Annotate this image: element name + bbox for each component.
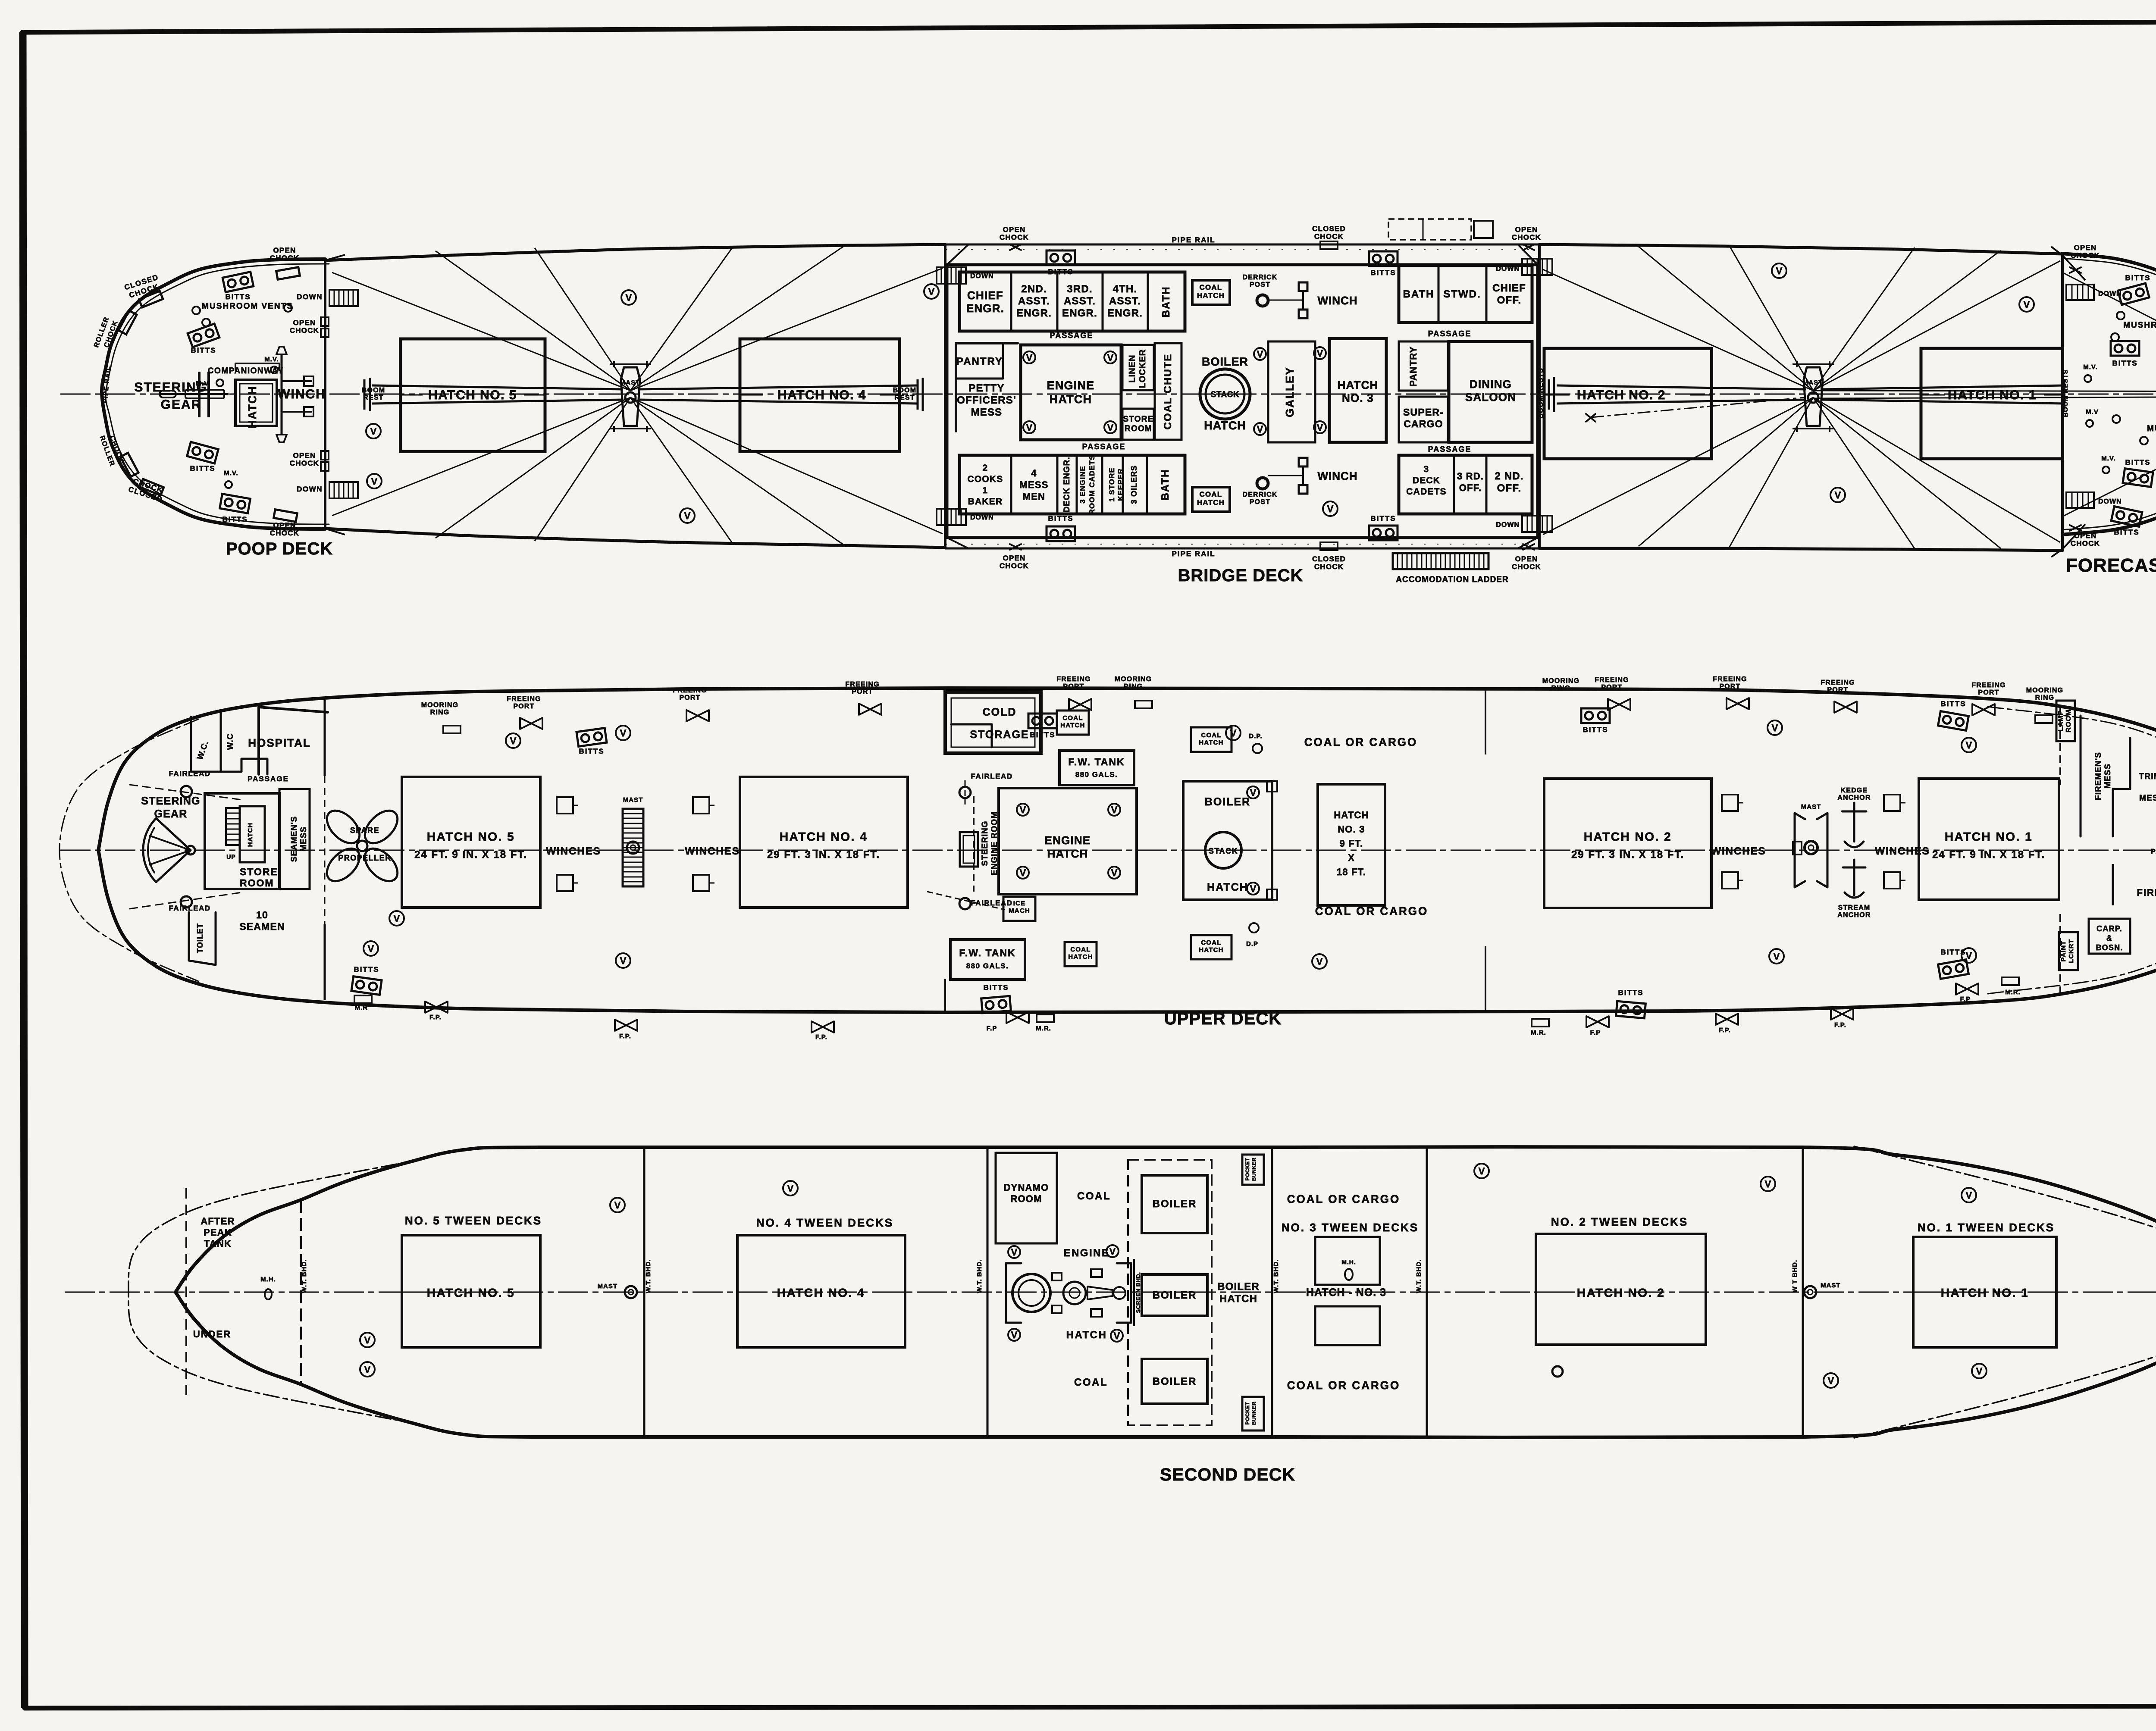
svg-text:V: V	[684, 510, 691, 521]
svg-text:MAST: MAST	[1801, 803, 1821, 811]
svg-text:W.T. BHD.: W.T. BHD.	[976, 1259, 983, 1293]
svg-text:LCKRT: LCKRT	[2068, 939, 2075, 963]
svg-text:CHOCK: CHOCK	[1314, 563, 1344, 571]
svg-text:CHOCK: CHOCK	[290, 326, 319, 335]
svg-text:UPPER DECK: UPPER DECK	[1164, 1009, 1282, 1028]
svg-text:BITTS: BITTS	[2114, 528, 2139, 536]
svg-text:880 GALS.: 880 GALS.	[966, 962, 1009, 970]
svg-text:BITTS: BITTS	[225, 293, 251, 301]
svg-text:DOWN: DOWN	[297, 293, 323, 301]
svg-text:BUNKER: BUNKER	[1251, 1158, 1257, 1181]
svg-text:GEAR: GEAR	[161, 398, 202, 412]
svg-text:F.P.: F.P.	[815, 1033, 827, 1041]
svg-text:2ND.: 2ND.	[1021, 283, 1047, 295]
svg-text:BOSN.: BOSN.	[2096, 943, 2123, 952]
svg-text:CADETS: CADETS	[1406, 487, 1447, 497]
svg-text:KEEPER: KEEPER	[1116, 468, 1125, 501]
svg-text:HATCH NO. 5: HATCH NO. 5	[428, 388, 517, 402]
svg-text:OPEN: OPEN	[1003, 554, 1026, 562]
svg-text:HATCH: HATCH	[247, 823, 254, 847]
svg-text:PORT: PORT	[852, 688, 873, 695]
svg-text:F.W. TANK: F.W. TANK	[959, 947, 1015, 958]
svg-text:V: V	[1976, 1366, 1983, 1377]
svg-text:STEERING: STEERING	[141, 795, 200, 807]
svg-text:WINCH: WINCH	[1317, 470, 1357, 482]
svg-text:PASSAGE: PASSAGE	[1082, 442, 1126, 451]
svg-text:OFF.: OFF.	[1459, 482, 1482, 493]
svg-text:BATH: BATH	[1160, 286, 1172, 318]
svg-text:STORE: STORE	[240, 866, 278, 877]
svg-text:2: 2	[983, 463, 988, 473]
svg-text:BAKER: BAKER	[968, 497, 1003, 507]
svg-text:FIREMEN'S: FIREMEN'S	[2094, 752, 2103, 800]
svg-text:V: V	[510, 736, 517, 746]
svg-text:DOWN: DOWN	[1496, 265, 1520, 272]
svg-text:W.T. BHD.: W.T. BHD.	[1415, 1259, 1423, 1293]
svg-text:V: V	[928, 286, 935, 297]
svg-text:MACH: MACH	[1009, 907, 1030, 914]
svg-text:COLD: COLD	[983, 706, 1017, 718]
svg-text:V: V	[1026, 352, 1033, 363]
svg-text:HATCH NO. 5: HATCH NO. 5	[427, 830, 515, 843]
svg-text:DYNAMO: DYNAMO	[1004, 1182, 1049, 1193]
svg-text:V: V	[787, 1183, 794, 1194]
svg-text:COAL CHUTE: COAL CHUTE	[1162, 354, 1174, 430]
svg-text:STEERING: STEERING	[981, 820, 990, 866]
svg-text:M.R.: M.R.	[1531, 1029, 1546, 1036]
svg-text:POST: POST	[1250, 281, 1270, 288]
svg-text:POOP DECK: POOP DECK	[226, 539, 333, 558]
svg-text:V: V	[620, 728, 627, 739]
svg-text:V: V	[1776, 266, 1783, 276]
svg-text:PANTRY: PANTRY	[1408, 346, 1419, 387]
svg-text:V: V	[364, 1335, 371, 1346]
svg-text:PASSAGE: PASSAGE	[2151, 848, 2156, 855]
svg-text:MUSHROOM VENTS: MUSHROOM VENTS	[2123, 321, 2156, 330]
svg-text:ENGINE: ENGINE	[1063, 1247, 1109, 1259]
svg-text:COAL: COAL	[1201, 732, 1221, 739]
svg-text:CHOCK: CHOCK	[270, 254, 299, 262]
svg-text:V: V	[1772, 723, 1778, 733]
svg-text:BITTS: BITTS	[579, 747, 604, 755]
svg-text:ICE: ICE	[1013, 900, 1026, 907]
svg-text:UP: UP	[226, 853, 235, 860]
svg-text:BUNKER: BUNKER	[1251, 1402, 1257, 1425]
svg-text:CLOSED: CLOSED	[1312, 555, 1346, 563]
svg-text:OFFICERS': OFFICERS'	[957, 394, 1016, 406]
svg-text:V: V	[368, 943, 374, 954]
svg-text:AFTER: AFTER	[201, 1216, 235, 1227]
svg-text:V: V	[1316, 956, 1323, 967]
svg-text:F.P.: F.P.	[1719, 1027, 1731, 1034]
svg-text:LOCKER: LOCKER	[1138, 349, 1147, 388]
svg-text:V: V	[364, 1364, 371, 1375]
svg-text:ROOM CADETS: ROOM CADETS	[1088, 455, 1096, 515]
svg-text:NO. 1 TWEEN DECKS: NO. 1 TWEEN DECKS	[1918, 1221, 2055, 1234]
svg-text:DOWN: DOWN	[2098, 498, 2122, 505]
svg-text:WINCHES: WINCHES	[546, 845, 601, 857]
svg-text:10: 10	[256, 909, 268, 920]
svg-text:MOORING: MOORING	[1542, 677, 1580, 685]
svg-text:SCREEN BHD.: SCREEN BHD.	[1135, 1272, 1141, 1313]
svg-text:V: V	[1774, 951, 1780, 962]
svg-text:NO. 3: NO. 3	[1342, 391, 1374, 404]
svg-text:V: V	[1020, 867, 1026, 878]
svg-text:BOILER: BOILER	[1153, 1376, 1197, 1387]
svg-text:BITTS: BITTS	[1940, 700, 1966, 708]
svg-text:9 FT.: 9 FT.	[1340, 838, 1363, 849]
svg-text:SPARE: SPARE	[350, 826, 379, 835]
svg-text:D.P.: D.P.	[1249, 732, 1262, 740]
svg-text:HATCH - NO. 3: HATCH - NO. 3	[1306, 1287, 1386, 1299]
svg-text:ACCOMODATION LADDER: ACCOMODATION LADDER	[1396, 575, 1508, 584]
svg-text:FAIRLEAD: FAIRLEAD	[169, 770, 211, 778]
svg-text:V: V	[1317, 348, 1323, 359]
svg-text:COAL: COAL	[1074, 1377, 1108, 1388]
svg-text:DOWN: DOWN	[297, 485, 323, 493]
svg-text:COAL OR CARGO: COAL OR CARGO	[1287, 1193, 1400, 1205]
svg-text:PROPELLER: PROPELLER	[338, 854, 392, 862]
svg-text:M.V.: M.V.	[224, 470, 238, 477]
svg-text:DINING: DINING	[1470, 378, 1512, 391]
svg-text:W.C: W.C	[226, 733, 235, 750]
svg-text:DECK: DECK	[1413, 476, 1440, 485]
svg-text:CLOSED: CLOSED	[1312, 225, 1346, 233]
svg-text:PANTRY: PANTRY	[956, 356, 1003, 367]
svg-text:V: V	[1250, 787, 1257, 798]
svg-text:WINCHES: WINCHES	[1711, 845, 1766, 857]
svg-text:PORT: PORT	[1063, 683, 1084, 690]
svg-text:DECK ENGR.: DECK ENGR.	[1062, 457, 1072, 512]
svg-text:MESS: MESS	[299, 826, 308, 851]
svg-text:DERRICK: DERRICK	[1242, 274, 1277, 281]
svg-text:HATCH NO. 4: HATCH NO. 4	[780, 830, 868, 843]
svg-text:CHOCK: CHOCK	[1000, 233, 1029, 241]
svg-text:OPEN: OPEN	[273, 246, 296, 254]
svg-text:V: V	[1966, 1190, 1972, 1201]
svg-text:PASSAGE: PASSAGE	[1428, 445, 1472, 454]
svg-text:PORT: PORT	[679, 694, 700, 701]
svg-text:BITTS: BITTS	[1370, 269, 1396, 277]
svg-text:HATCH: HATCH	[1334, 810, 1369, 820]
svg-text:BITTS: BITTS	[1370, 514, 1396, 523]
svg-text:NO. 2 TWEEN DECKS: NO. 2 TWEEN DECKS	[1551, 1215, 1688, 1228]
svg-text:HATCH NO. 4: HATCH NO. 4	[777, 388, 866, 402]
svg-text:24 FT. 9 IN. X 18 FT.: 24 FT. 9 IN. X 18 FT.	[414, 849, 527, 861]
svg-text:3 OILERS: 3 OILERS	[1130, 465, 1138, 504]
svg-text:M.H.: M.H.	[260, 1276, 276, 1283]
svg-text:WINCH: WINCH	[1317, 294, 1357, 307]
svg-text:29 FT. 3 IN. X 18 FT.: 29 FT. 3 IN. X 18 FT.	[1571, 849, 1684, 861]
svg-text:M.V.: M.V.	[196, 380, 210, 387]
svg-text:24 FT. 9 IN. X 18 FT.: 24 FT. 9 IN. X 18 FT.	[1932, 849, 2045, 861]
svg-text:V: V	[1828, 1375, 1834, 1386]
svg-text:F.P: F.P	[987, 1025, 997, 1032]
svg-text:ENGR.: ENGR.	[966, 302, 1004, 315]
svg-text:TOILET: TOILET	[196, 923, 204, 953]
svg-text:NO. 5 TWEEN DECKS: NO. 5 TWEEN DECKS	[405, 1214, 542, 1227]
svg-text:V: V	[1327, 504, 1334, 514]
svg-text:BATH: BATH	[1159, 469, 1171, 501]
svg-text:STWD.: STWD.	[1443, 288, 1481, 300]
svg-text:HATCH: HATCH	[1337, 379, 1378, 391]
svg-text:PASSAGE: PASSAGE	[1050, 331, 1094, 340]
svg-text:V: V	[1966, 740, 1972, 751]
svg-text:HATCH NO. 2: HATCH NO. 2	[1584, 830, 1672, 843]
svg-text:4: 4	[1031, 468, 1037, 479]
svg-text:BITTS: BITTS	[983, 983, 1009, 992]
svg-text:RING: RING	[430, 709, 450, 716]
svg-text:BOILER: BOILER	[1217, 1281, 1260, 1293]
svg-text:V: V	[2024, 299, 2030, 310]
svg-text:BITTS: BITTS	[354, 965, 379, 973]
svg-text:4TH.: 4TH.	[1113, 283, 1138, 295]
svg-text:STORE: STORE	[1123, 415, 1153, 424]
svg-text:DOWN: DOWN	[970, 272, 994, 280]
svg-text:W T BHD.: W T BHD.	[1791, 1260, 1799, 1293]
svg-text:SUPER-: SUPER-	[1403, 407, 1444, 418]
svg-text:OPEN: OPEN	[273, 521, 296, 529]
svg-text:DERRICK: DERRICK	[1242, 491, 1277, 498]
svg-text:REST: REST	[363, 394, 383, 401]
svg-text:TANK: TANK	[204, 1238, 232, 1249]
svg-text:F.P.: F.P.	[1834, 1021, 1846, 1029]
svg-text:FORECASTLE DECK: FORECASTLE DECK	[2066, 555, 2156, 576]
svg-text:COAL: COAL	[1201, 939, 1221, 946]
svg-text:PASSAGE: PASSAGE	[248, 775, 289, 783]
svg-text:CARP.: CARP.	[2096, 924, 2122, 933]
svg-text:2 ND.: 2 ND.	[1495, 470, 1523, 482]
svg-text:BOILER: BOILER	[1153, 1290, 1197, 1301]
svg-text:M.V.: M.V.	[2101, 455, 2115, 462]
svg-text:CHIEF: CHIEF	[967, 289, 1003, 302]
svg-text:V: V	[1026, 422, 1033, 433]
svg-text:MUSHROOM VENTS: MUSHROOM VENTS	[202, 302, 293, 311]
svg-text:V: V	[371, 476, 378, 487]
svg-text:FIREMEN: FIREMEN	[2137, 887, 2156, 898]
svg-text:V: V	[1114, 1330, 1120, 1341]
svg-text:V: V	[394, 913, 400, 924]
svg-text:FREEING: FREEING	[507, 695, 541, 703]
svg-text:BITTS: BITTS	[1048, 514, 1073, 523]
svg-text:FREEING: FREEING	[1056, 676, 1091, 683]
svg-text:V: V	[626, 292, 632, 303]
svg-text:ASST.: ASST.	[1064, 295, 1096, 307]
svg-text:ASST.: ASST.	[1109, 295, 1141, 307]
svg-text:BOILER: BOILER	[1153, 1198, 1197, 1210]
svg-text:POCKET: POCKET	[1244, 1158, 1250, 1180]
svg-text:MAST: MAST	[598, 1283, 618, 1290]
svg-text:V: V	[1479, 1166, 1485, 1177]
svg-text:M.R.: M.R.	[1036, 1025, 1051, 1032]
svg-text:V: V	[1111, 867, 1118, 878]
svg-text:HATCH: HATCH	[1068, 953, 1093, 961]
svg-text:HATCH NO. 5: HATCH NO. 5	[427, 1286, 515, 1299]
svg-text:ENGR.: ENGR.	[1107, 307, 1143, 319]
svg-text:CHOCK: CHOCK	[2071, 251, 2100, 260]
svg-text:18 FT.: 18 FT.	[1337, 867, 1366, 877]
svg-text:SEAMEN'S: SEAMEN'S	[290, 816, 299, 862]
svg-text:MEN: MEN	[1023, 491, 1046, 502]
svg-text:LAMP: LAMP	[2057, 710, 2065, 731]
svg-text:D.P: D.P	[1246, 940, 1258, 948]
svg-text:ENGR.: ENGR.	[1016, 307, 1052, 319]
svg-text:FREEING: FREEING	[1713, 676, 1747, 683]
svg-text:F.W. TANK: F.W. TANK	[1068, 756, 1125, 767]
svg-text:V: V	[1966, 950, 1972, 961]
svg-text:PIPE RAIL: PIPE RAIL	[1172, 236, 1215, 244]
svg-text:PORT: PORT	[1827, 686, 1848, 694]
svg-text:COOKS: COOKS	[967, 474, 1003, 484]
svg-text:RING: RING	[2035, 694, 2055, 701]
svg-text:DOWN: DOWN	[970, 514, 994, 521]
svg-text:SEAMEN: SEAMEN	[239, 921, 285, 932]
svg-text:RING: RING	[1124, 683, 1143, 690]
svg-text:W.T. BHD.: W.T. BHD.	[645, 1259, 652, 1293]
svg-text:BITTS: BITTS	[190, 464, 215, 473]
svg-text:CHOCK: CHOCK	[290, 459, 319, 467]
svg-text:W.T. BHD.: W.T. BHD.	[301, 1259, 308, 1293]
svg-text:BRIDGE DECK: BRIDGE DECK	[1178, 566, 1303, 585]
svg-text:COAL OR CARGO: COAL OR CARGO	[1304, 736, 1417, 748]
svg-text:V: V	[1107, 422, 1114, 433]
svg-text:HATCH: HATCH	[1207, 881, 1248, 893]
svg-text:UNDER: UNDER	[193, 1329, 231, 1340]
svg-text:HATCH NO. 1: HATCH NO. 1	[1941, 1286, 2029, 1299]
svg-text:BITTS: BITTS	[222, 515, 248, 523]
svg-text:M.V.: M.V.	[264, 356, 279, 363]
svg-text:FREEING: FREEING	[1821, 679, 1855, 686]
svg-text:880 GALS.: 880 GALS.	[1075, 770, 1118, 779]
svg-text:CHOCK: CHOCK	[270, 529, 299, 537]
svg-text:DOWN: DOWN	[1496, 521, 1520, 529]
svg-text:ENGINE: ENGINE	[1045, 834, 1091, 847]
svg-text:V: V	[1230, 728, 1237, 739]
svg-text:HATCH: HATCH	[1219, 1293, 1257, 1305]
svg-text:W.T. BHD.: W.T. BHD.	[1272, 1259, 1280, 1293]
svg-text:ROOM: ROOM	[1125, 424, 1152, 433]
svg-text:PAINT: PAINT	[2060, 941, 2067, 962]
svg-text:OPEN: OPEN	[1003, 225, 1026, 234]
svg-text:MESS: MESS	[2103, 764, 2112, 789]
svg-text:MAST: MAST	[1821, 1282, 1841, 1289]
svg-text:PORT: PORT	[513, 703, 534, 710]
svg-text:STREAM: STREAM	[1838, 904, 1871, 911]
svg-text:NO. 4 TWEEN DECKS: NO. 4 TWEEN DECKS	[756, 1216, 893, 1229]
svg-text:FREEING: FREEING	[1595, 676, 1629, 684]
svg-text:LINEN: LINEN	[1128, 355, 1137, 383]
svg-text:NO. 3: NO. 3	[1338, 824, 1365, 835]
svg-text:HATCH: HATCH	[1060, 722, 1085, 729]
svg-text:OFF.: OFF.	[1497, 482, 1522, 494]
svg-text:COAL: COAL	[1200, 490, 1222, 498]
svg-text:M.R.: M.R.	[2005, 989, 2021, 996]
svg-text:HATCH NO. 4: HATCH NO. 4	[777, 1286, 865, 1299]
svg-text:F.P.: F.P.	[429, 1014, 442, 1021]
svg-text:POCKET: POCKET	[1244, 1402, 1250, 1424]
svg-text:BOILER: BOILER	[1205, 796, 1250, 808]
svg-text:OPEN: OPEN	[293, 319, 316, 327]
svg-text:HATCH: HATCH	[1050, 393, 1092, 406]
svg-text:HATCH: HATCH	[1197, 498, 1225, 507]
svg-text:F.P: F.P	[1960, 995, 1971, 1003]
svg-text:ROOM: ROOM	[1010, 1193, 1042, 1204]
svg-text:V: V	[1020, 804, 1026, 815]
svg-text:BITTS: BITTS	[2125, 458, 2150, 466]
svg-text:V: V	[1111, 804, 1118, 815]
svg-text:WINCHES: WINCHES	[1875, 845, 1930, 857]
svg-text:29 FT. 3 IN. X 18 FT.: 29 FT. 3 IN. X 18 FT.	[767, 849, 880, 861]
svg-text:WINCHES: WINCHES	[685, 845, 740, 857]
svg-text:V: V	[370, 426, 377, 437]
svg-text:GALLEY: GALLEY	[1283, 366, 1296, 417]
svg-text:FREEING: FREEING	[673, 687, 707, 694]
svg-text:MOORING: MOORING	[421, 701, 459, 709]
svg-text:CHIEF: CHIEF	[1492, 282, 1526, 294]
svg-text:3 ENGINE: 3 ENGINE	[1078, 466, 1087, 503]
svg-text:TRIMMERS: TRIMMERS	[2139, 772, 2156, 781]
svg-text:M.R: M.R	[355, 1004, 368, 1011]
svg-text:3: 3	[1424, 464, 1429, 474]
svg-text:PORT: PORT	[1719, 683, 1740, 690]
svg-text:HATCH NO. 1: HATCH NO. 1	[1948, 388, 2037, 402]
svg-text:M.V: M.V	[2086, 408, 2099, 416]
svg-text:COAL: COAL	[1200, 283, 1222, 291]
svg-text:PASSAGE: PASSAGE	[1428, 329, 1472, 338]
svg-text:V: V	[1011, 1330, 1018, 1340]
svg-text:STACK: STACK	[1209, 847, 1238, 855]
svg-text:OPEN: OPEN	[2074, 244, 2097, 252]
svg-text:ENGINE: ENGINE	[1047, 379, 1095, 392]
svg-text:WINCH: WINCH	[278, 387, 326, 401]
svg-text:BOOM RESTS: BOOM RESTS	[2062, 369, 2069, 417]
svg-text:KEDGE: KEDGE	[1841, 787, 1868, 794]
svg-text:HATCH: HATCH	[246, 385, 259, 428]
svg-text:OPEN: OPEN	[293, 451, 316, 460]
svg-text:STACK: STACK	[1211, 390, 1240, 399]
svg-text:M.H.: M.H.	[1341, 1258, 1356, 1265]
svg-text:HATCH NO. 2: HATCH NO. 2	[1577, 1286, 1665, 1299]
svg-text:M.V.: M.V.	[2083, 363, 2097, 371]
svg-text:CHOCK: CHOCK	[1314, 232, 1344, 241]
svg-text:HOSPITAL: HOSPITAL	[248, 736, 311, 749]
svg-text:V: V	[1317, 422, 1323, 433]
svg-text:ANCHOR: ANCHOR	[1837, 911, 1871, 919]
svg-text:BOILER: BOILER	[1202, 355, 1248, 368]
svg-text:OPEN: OPEN	[1515, 555, 1538, 563]
svg-text:ASST.: ASST.	[1018, 295, 1050, 307]
svg-text:GEAR: GEAR	[154, 808, 187, 820]
svg-text:PIPE RAIL: PIPE RAIL	[1172, 550, 1215, 558]
svg-text:MESS BOY: MESS BOY	[2139, 794, 2156, 803]
svg-text:ROOM: ROOM	[2065, 709, 2072, 732]
svg-text:1 STORE: 1 STORE	[1108, 467, 1116, 501]
svg-text:OPEN: OPEN	[2074, 532, 2097, 540]
svg-text:HATCH NO. 1: HATCH NO. 1	[1945, 830, 2033, 843]
svg-text:V: V	[614, 1200, 621, 1211]
svg-text:HATCH: HATCH	[1204, 419, 1246, 432]
svg-text:BOOM: BOOM	[893, 387, 917, 394]
svg-text:ROOM: ROOM	[240, 877, 274, 889]
svg-text:BATH: BATH	[1403, 288, 1435, 300]
svg-text:COAL: COAL	[1062, 714, 1083, 722]
svg-text:MESS: MESS	[1019, 479, 1048, 490]
svg-text:SALOON: SALOON	[1465, 391, 1516, 404]
svg-text:MOORING: MOORING	[1115, 676, 1152, 683]
svg-text:HATCH: HATCH	[1199, 739, 1223, 746]
svg-text:ANCHOR: ANCHOR	[1837, 794, 1871, 801]
svg-text:HATCH: HATCH	[1047, 847, 1088, 860]
